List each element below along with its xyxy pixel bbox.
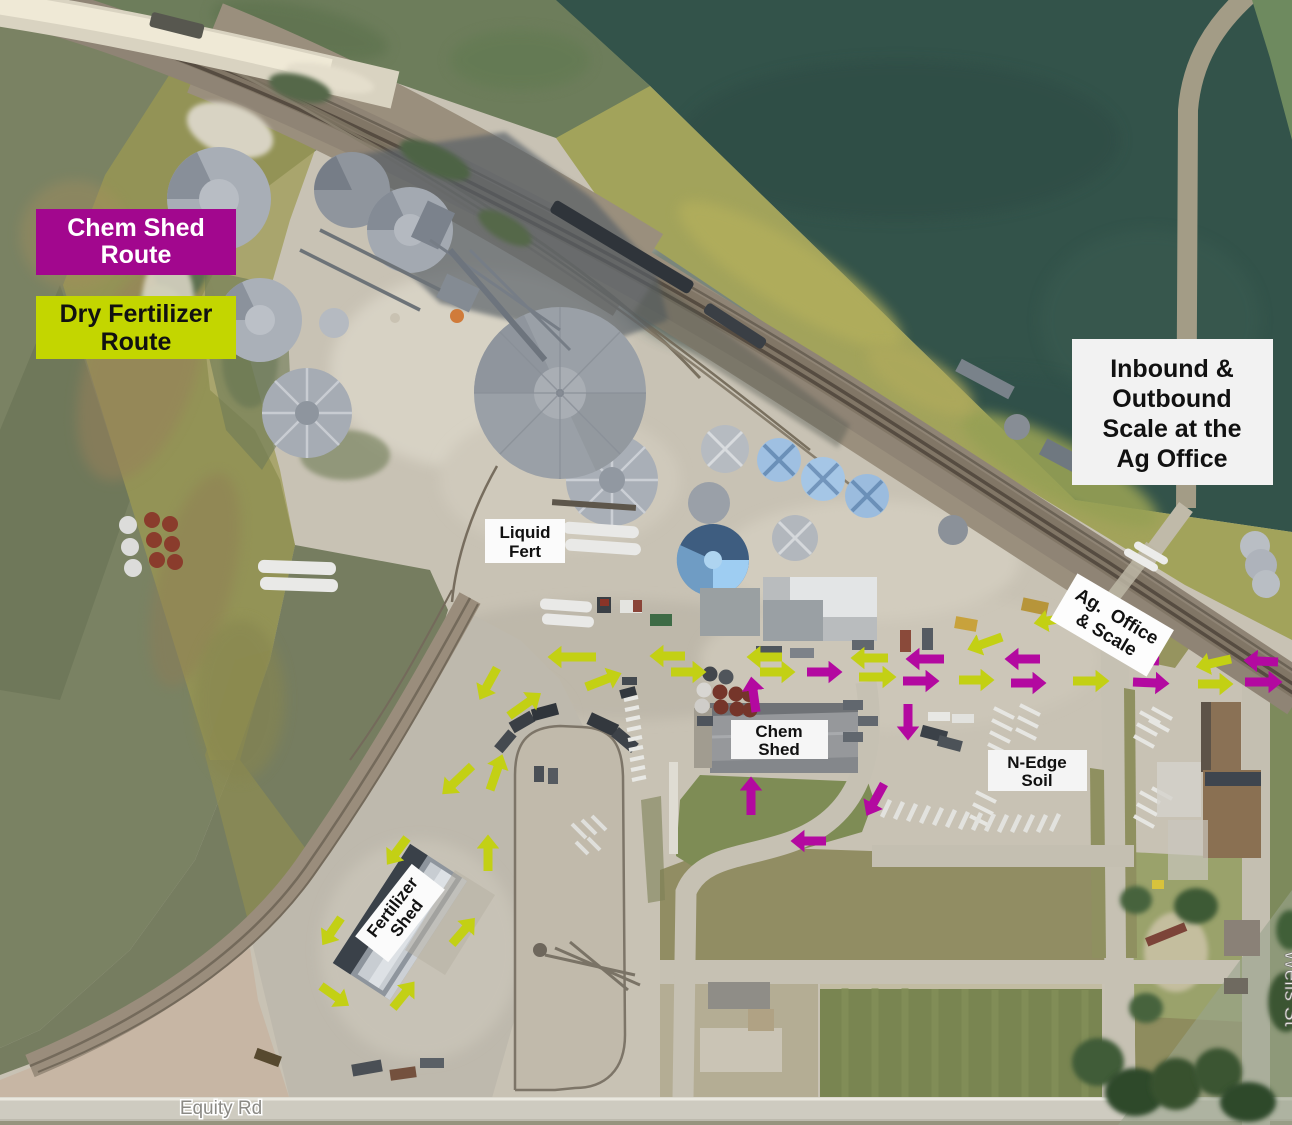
- svg-text:Wells St: Wells St: [1280, 950, 1292, 1027]
- svg-text:Chem Shed: Chem Shed: [67, 214, 205, 242]
- svg-text:Route: Route: [101, 328, 172, 356]
- svg-text:Ag Office: Ag Office: [1116, 445, 1227, 473]
- svg-text:Scale at the: Scale at the: [1103, 415, 1242, 443]
- svg-text:Soil: Soil: [1021, 771, 1052, 790]
- svg-text:Equity Rd: Equity Rd: [180, 1098, 262, 1119]
- svg-text:Shed: Shed: [758, 740, 800, 759]
- svg-text:Inbound &: Inbound &: [1110, 355, 1234, 383]
- svg-text:Chem: Chem: [755, 722, 802, 741]
- svg-text:Fert: Fert: [509, 542, 541, 561]
- svg-text:Dry Fertilizer: Dry Fertilizer: [60, 300, 213, 328]
- svg-text:N-Edge: N-Edge: [1007, 753, 1067, 772]
- svg-text:Outbound: Outbound: [1112, 385, 1231, 413]
- svg-text:Route: Route: [101, 241, 172, 269]
- svg-text:Liquid: Liquid: [500, 523, 551, 542]
